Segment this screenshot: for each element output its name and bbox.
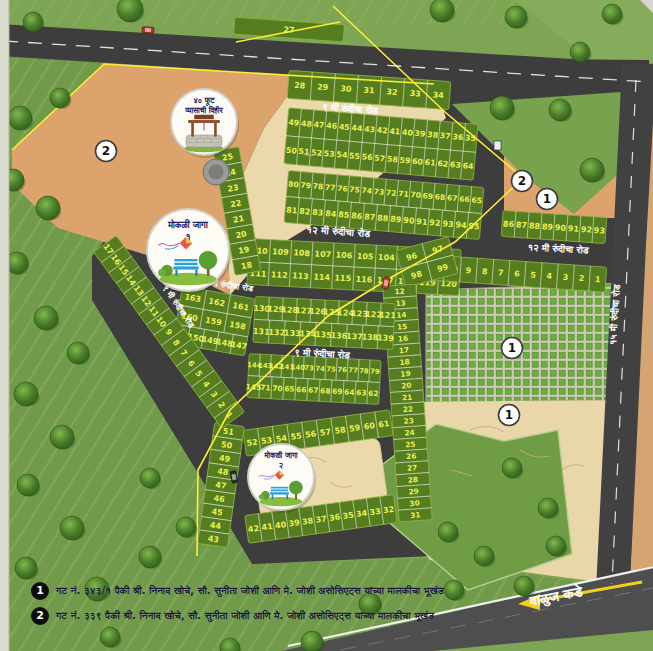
plot-number: 78 [359, 367, 369, 375]
park-tree [289, 481, 302, 494]
area-marker-1: 1 [537, 189, 558, 210]
plot-number: 37 [315, 514, 327, 524]
plot-number: 56 [361, 152, 373, 162]
plot-number: 28 [407, 475, 418, 485]
plot-number: 89 [542, 222, 554, 232]
legend-marker-1: 1 [31, 582, 49, 600]
plot-number: 94 [455, 220, 467, 230]
plot-number: 34 [355, 509, 368, 520]
plot-number: 58 [387, 155, 399, 165]
plot-number: 44 [351, 123, 363, 133]
well-post [214, 122, 217, 137]
tree-canopy [176, 517, 196, 537]
plot-number: 9 [465, 266, 472, 275]
plot-number: 20 [401, 381, 412, 391]
tree-canopy [301, 631, 323, 651]
park-tree [199, 251, 217, 269]
plot-number: 133 [284, 328, 301, 338]
plot-number: 72 [386, 188, 397, 198]
plot-number: 24 [404, 428, 415, 438]
plot-number: 5 [530, 270, 537, 279]
plot-number: 38 [427, 130, 439, 140]
plot-block-block-121-139: 1301291281271261251241231221211311321331… [252, 296, 397, 349]
plot-number: 69 [422, 191, 433, 201]
bush [158, 269, 165, 276]
plot-number: 92 [429, 218, 441, 228]
plot-number: 36 [452, 132, 464, 142]
plot-number: 46 [213, 494, 226, 505]
plot-number: 75 [326, 365, 336, 373]
plot-number: 27 [283, 25, 295, 35]
plot-number: 70 [272, 384, 283, 394]
plot-number: 37 [439, 131, 451, 141]
plot-number: 30 [409, 498, 420, 508]
tree-canopy [502, 458, 522, 478]
well-post [191, 122, 194, 137]
plot-number: 52 [311, 148, 323, 158]
plot-number: 139 [377, 333, 395, 343]
plot-number: 104 [378, 253, 396, 263]
plot-number: 79 [300, 181, 311, 191]
callout-title: मोकळी जागा [263, 450, 297, 460]
car-roof [145, 28, 151, 32]
tree-canopy [490, 96, 514, 120]
plot-number: 93 [442, 219, 454, 229]
site-plan-image: 2728293031323334494847464544434241403938… [0, 0, 653, 651]
plot-number: 71 [260, 383, 271, 393]
plot-number: 62 [368, 389, 379, 399]
plot-number: 23 [403, 416, 414, 426]
plot-number: 56 [305, 429, 318, 440]
plot-number: 49 [288, 118, 300, 128]
plot-number: 8 [482, 267, 489, 276]
plot-number: 3 [562, 273, 568, 282]
plot-number: 74 [361, 186, 372, 196]
plot-number: 42 [376, 126, 388, 136]
plot-number: 82 [299, 207, 311, 217]
plot-number: 48 [217, 467, 230, 478]
plot-number: 77 [348, 366, 358, 374]
area-marker-1: 1 [502, 338, 523, 359]
plot-number: 47 [313, 120, 325, 130]
callout-title: ४० फूट [194, 96, 216, 106]
plot-number: 22 [403, 404, 414, 414]
plot-number: 75 [349, 185, 360, 195]
tree-canopy [14, 382, 38, 406]
plot-number: 68 [320, 386, 331, 396]
plot-number: 84 [325, 209, 337, 219]
plot-number: 1 [595, 275, 602, 284]
bench-seat [173, 266, 198, 269]
plot-number: 17 [398, 345, 409, 355]
plot-number: 85 [338, 210, 350, 220]
plot-number: 30 [340, 84, 352, 94]
tree-canopy [580, 158, 604, 182]
plot-number: 78 [312, 182, 323, 192]
marker-number: 2 [518, 174, 526, 188]
tree-canopy [538, 498, 558, 518]
plot-number: 114 [313, 272, 331, 282]
marker-number: 2 [102, 144, 110, 158]
plot-number: 60 [412, 157, 424, 167]
plot-number: 73 [373, 187, 384, 197]
plot-number: 71 [398, 189, 409, 199]
plot-number: 63 [450, 160, 462, 170]
legend-item-1: 1 गट नं. ३४३/१ पैकी श्री. निनाद खोचे, सौ… [31, 582, 444, 600]
plot-number: 90 [403, 216, 415, 226]
plot-number: 66 [459, 194, 470, 204]
legend-marker-2: 2 [31, 607, 49, 625]
plot-number: 59 [399, 156, 411, 166]
plot-number: 55 [290, 431, 303, 442]
plot-block-block-140-ext: 1441431421411407374757677787914571706566… [245, 353, 381, 404]
plot-number: 64 [344, 387, 355, 397]
plot-number: 65 [284, 384, 295, 394]
plot-number: 69 [332, 387, 343, 397]
plot-number: 33 [369, 507, 381, 517]
plot-number: 19 [400, 369, 411, 379]
plot-number: 87 [364, 212, 376, 222]
pond-center [209, 165, 224, 180]
plot-number: 81 [286, 206, 298, 216]
tree-canopy [549, 99, 571, 121]
tree-canopy [602, 4, 622, 24]
plot-number: 21 [402, 393, 413, 403]
plot-number: 40 [274, 520, 287, 531]
tree-canopy [140, 468, 160, 488]
plot-number: 13 [395, 298, 406, 308]
plot-number: 55 [349, 151, 361, 161]
plot-number: 121 [379, 310, 397, 320]
well-crossbar [188, 120, 220, 123]
plot-number: 35 [465, 133, 477, 143]
plot-number: 39 [288, 518, 301, 529]
plot-number: 108 [293, 248, 311, 258]
plot-number: 83 [312, 208, 324, 218]
plot-number: 115 [334, 274, 352, 284]
area-marker-2: 2 [512, 171, 533, 192]
plot-number: 54 [336, 150, 348, 160]
area-marker-2: 2 [96, 141, 117, 162]
tree-canopy [50, 425, 74, 449]
tree-canopy [505, 6, 527, 28]
plot-number: 41 [389, 127, 401, 137]
plot-number: 86 [503, 219, 515, 229]
plot-number: 23 [227, 183, 240, 194]
plot-number: 63 [356, 388, 367, 398]
bench-leg [175, 270, 177, 276]
plot-number: 90 [555, 223, 567, 233]
bench-leg [272, 495, 274, 500]
plot-number: 54 [275, 433, 288, 444]
plot-number: 41 [261, 522, 274, 533]
plot-number: 25 [405, 440, 416, 450]
plot-number: 52 [246, 438, 258, 448]
plot-number: 50 [220, 440, 233, 451]
plot-number: 35 [342, 510, 355, 521]
tree-canopy [34, 306, 58, 330]
plot-number: 27 [407, 463, 418, 473]
plot-number: 38 [301, 516, 314, 527]
plot-number: 34 [432, 91, 444, 101]
plot-number: 93 [593, 226, 605, 236]
legend-text-1: गट नं. ३४३/१ पैकी श्री. निनाद खोचे, सौ. … [56, 585, 444, 597]
plot-number: 106 [335, 251, 353, 261]
plot-number: 62 [437, 159, 449, 169]
page-left-edge [0, 0, 9, 651]
tree-canopy [546, 536, 566, 556]
tree-canopy [570, 42, 590, 62]
plot-number: 51 [222, 427, 235, 438]
bench-back [271, 490, 288, 492]
plot-number: 77 [325, 183, 336, 193]
plot-number: 89 [390, 215, 402, 225]
plot-number: 91 [568, 224, 580, 234]
plot-number: 2 [578, 274, 584, 283]
tree-canopy [474, 546, 494, 566]
plot-number: 86 [351, 211, 363, 221]
plot-number: 50 [286, 146, 298, 156]
plot-number: 18 [399, 357, 410, 367]
plot-number: 42 [247, 524, 259, 534]
plot-number: 65 [471, 195, 482, 205]
plot-number: 29 [317, 82, 329, 92]
plot-number: 53 [261, 436, 273, 446]
tree-canopy [67, 342, 89, 364]
bench-leg [286, 495, 288, 500]
site-plan-svg: 2728293031323334494847464544434241403938… [0, 0, 653, 651]
bush [259, 494, 264, 499]
legend: 1 गट नं. ३४३/१ पैकी श्री. निनाद खोचे, सौ… [31, 582, 444, 632]
plot-number: 61 [424, 158, 436, 168]
plot-number: 44 [209, 521, 222, 532]
plot-number: 16 [398, 334, 409, 344]
tree-canopy [444, 580, 464, 600]
plot-number: 4 [546, 272, 553, 281]
plot-number: 59 [349, 423, 362, 434]
plot-number: 39 [414, 129, 426, 139]
bench-seat [270, 492, 289, 494]
marker-number: 1 [508, 341, 516, 355]
plot-number: 70 [410, 190, 421, 200]
plot-number: 80 [288, 179, 299, 189]
bench-leg [195, 270, 197, 276]
legend-text-2: गट नं. ३३९ पैकी श्री. निनाद खोचे, सौ. सु… [56, 610, 434, 622]
plot-number: 76 [337, 366, 347, 374]
plot-number: 107 [314, 249, 331, 259]
callout-title: व्यासाची विहीर [184, 105, 223, 115]
plot-number: 46 [326, 121, 338, 131]
bench-back [271, 487, 288, 489]
plot-number: 105 [357, 252, 375, 262]
tree-canopy [23, 12, 43, 32]
plot-number: 15 [397, 322, 408, 332]
plot-number: 132 [268, 328, 285, 338]
plot-number: 88 [529, 221, 541, 231]
plot-number: 48 [301, 119, 313, 129]
plot-number: 91 [416, 217, 428, 227]
plot-number: 116 [355, 275, 373, 285]
plot-number: 32 [386, 87, 398, 97]
plot-number: 73 [304, 364, 314, 372]
plot-number: 60 [363, 421, 376, 432]
plot-number: 43 [207, 534, 219, 544]
plot-number: 49 [219, 453, 232, 464]
tree-canopy [15, 557, 37, 579]
area-marker-1: 1 [499, 405, 520, 426]
plot-number: 76 [337, 184, 348, 194]
plot-number: 57 [319, 427, 331, 437]
plot-number: 33 [409, 89, 421, 99]
plot-number: 88 [377, 214, 389, 224]
tree-canopy [8, 106, 32, 130]
plot-number: 32 [382, 505, 394, 515]
tree-canopy [139, 546, 161, 568]
plot-number: 45 [211, 507, 224, 518]
plot-number: 12 [394, 287, 405, 297]
tree-canopy [60, 516, 84, 540]
plot-number: 61 [378, 419, 391, 430]
plot-number: 40 [402, 128, 414, 138]
legend-item-2: 2 गट नं. ३३९ पैकी श्री. निनाद खोचे, सौ. … [31, 607, 444, 625]
bench-back [174, 263, 197, 265]
plot-number: 22 [229, 198, 242, 209]
plot-number: 7 [498, 268, 504, 277]
plot-number: 74 [315, 365, 325, 373]
tree-canopy [430, 0, 454, 22]
plot-number: 113 [292, 271, 309, 281]
plot-number: 67 [308, 386, 319, 396]
plot-number: 28 [294, 81, 306, 91]
plot-number: 64 [462, 161, 474, 171]
tree-canopy [50, 88, 70, 108]
plot-number: 109 [272, 247, 290, 257]
plot-number: 67 [447, 193, 458, 203]
bench-back [174, 259, 197, 261]
marker-number: 1 [505, 408, 513, 422]
plot-number: 6 [514, 269, 521, 278]
road-sign [494, 141, 501, 150]
plot-number: 29 [408, 487, 419, 497]
tree-canopy [36, 196, 60, 220]
plot-number: 31 [410, 510, 421, 520]
plot-number: 57 [374, 153, 386, 163]
plot-number: 79 [370, 368, 380, 376]
plot-number: 45 [338, 122, 350, 132]
well-roof [194, 115, 214, 120]
plot-number: 47 [215, 480, 227, 490]
plot-number: 26 [406, 451, 417, 461]
plot-number: 36 [328, 512, 341, 523]
plot-number: 43 [364, 124, 376, 134]
plot-number: 14 [396, 310, 407, 320]
car-icon [142, 27, 154, 34]
callout-title: २ [279, 461, 283, 470]
plot-number: 58 [334, 425, 347, 436]
plot-number: 66 [296, 385, 307, 395]
tree-canopy [17, 474, 39, 496]
callout-title: मोकळी जागा [167, 218, 209, 230]
tree-canopy [438, 522, 458, 542]
plot-number: 137 [346, 332, 363, 342]
plot-number: 92 [581, 225, 593, 235]
marker-number: 1 [543, 192, 551, 206]
plot-number: 31 [363, 86, 375, 96]
plot-number: 53 [323, 149, 335, 159]
plot-number: 112 [271, 270, 288, 280]
plot-number: 68 [434, 192, 445, 202]
plot-number: 87 [516, 220, 528, 230]
